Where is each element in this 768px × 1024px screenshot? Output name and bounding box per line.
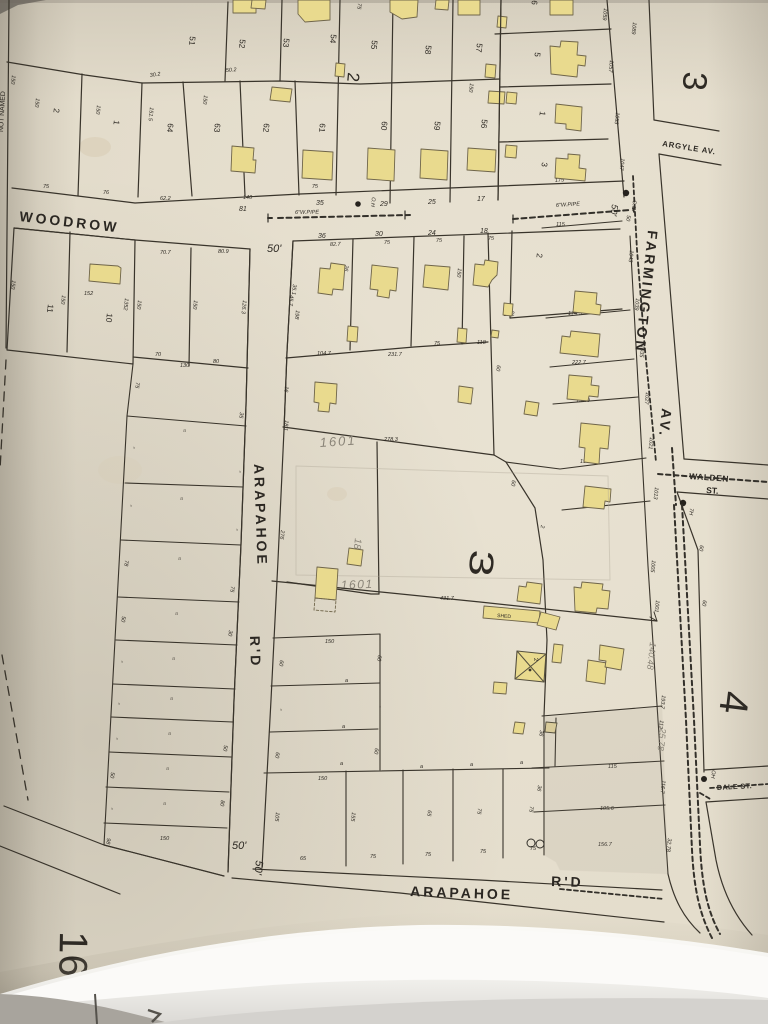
svg-text:1352: 1352 (122, 298, 129, 311)
svg-text:59: 59 (432, 121, 442, 132)
svg-text:155: 155 (349, 812, 356, 823)
svg-text:a: a (470, 762, 473, 768)
svg-text:150: 150 (94, 105, 101, 116)
svg-text:a: a (520, 760, 523, 766)
svg-text:81: 81 (239, 206, 247, 213)
svg-text:ST.: ST. (706, 485, 719, 496)
svg-text:65: 65 (300, 856, 307, 862)
svg-text:30: 30 (375, 231, 383, 238)
svg-text:1601: 1601 (319, 432, 357, 450)
svg-text:10: 10 (104, 313, 114, 324)
svg-text:70: 70 (155, 352, 162, 358)
svg-text:7H: 7H (687, 508, 694, 516)
svg-text:150: 150 (201, 95, 208, 106)
svg-text:O.H: O.H (369, 197, 376, 207)
svg-text:17: 17 (477, 196, 486, 203)
svg-text:150: 150 (325, 639, 335, 645)
svg-text:55: 55 (369, 40, 379, 51)
svg-text:a: a (183, 428, 186, 434)
svg-text:152: 152 (84, 291, 93, 297)
svg-text:2: 2 (539, 524, 545, 529)
svg-text:70.7: 70.7 (160, 250, 172, 256)
svg-text:150: 150 (9, 280, 16, 291)
svg-text:2: 2 (343, 72, 363, 83)
svg-text:150: 150 (467, 83, 474, 94)
svg-text:56: 56 (479, 119, 489, 130)
svg-text:50': 50' (609, 204, 620, 217)
svg-text:a: a (340, 761, 343, 767)
svg-text:1089: 1089 (630, 22, 637, 35)
svg-text:a: a (163, 801, 166, 807)
svg-text:1059: 1059 (601, 8, 608, 21)
svg-text:61: 61 (317, 123, 327, 134)
svg-text:R'D: R'D (247, 636, 264, 669)
svg-text:50': 50' (267, 243, 282, 255)
svg-text:a: a (170, 696, 173, 702)
svg-text:80.9: 80.9 (218, 249, 229, 255)
svg-text:150: 150 (135, 300, 142, 311)
svg-text:50': 50' (232, 840, 247, 852)
svg-text:25: 25 (427, 199, 436, 206)
svg-text:54: 54 (328, 34, 338, 45)
svg-text:a: a (420, 764, 423, 770)
svg-text:AV.: AV. (656, 408, 675, 440)
svg-text:150: 150 (191, 300, 198, 311)
svg-text:75: 75 (434, 341, 441, 347)
svg-text:80: 80 (213, 359, 220, 365)
svg-text:75: 75 (425, 852, 432, 858)
svg-text:51: 51 (187, 36, 197, 47)
svg-text:1001: 1001 (653, 600, 660, 613)
svg-text:118: 118 (477, 340, 487, 346)
svg-text:75: 75 (370, 854, 377, 860)
svg-text:a: a (166, 766, 169, 772)
svg-text:35.1: 35.1 (290, 284, 297, 295)
svg-text:R'D: R'D (551, 873, 584, 890)
svg-text:a: a (175, 611, 178, 617)
svg-text:a: a (168, 731, 171, 737)
svg-text:60: 60 (379, 121, 389, 132)
svg-text:18.1: 18.1 (282, 420, 289, 431)
svg-text:50': 50' (251, 860, 265, 877)
svg-text:76: 76 (103, 190, 110, 196)
svg-text:431.7: 431.7 (440, 596, 455, 602)
svg-text:75: 75 (480, 849, 487, 855)
svg-text:63: 63 (212, 123, 222, 134)
svg-text:18: 18 (480, 228, 488, 235)
svg-text:150: 150 (33, 98, 40, 109)
svg-text:a: a (345, 678, 348, 684)
svg-text:a: a (178, 556, 181, 562)
svg-text:150: 150 (59, 295, 66, 306)
svg-text:140: 140 (243, 195, 253, 201)
svg-text:75: 75 (43, 184, 50, 190)
svg-text:276: 276 (278, 529, 285, 541)
svg-text:150: 150 (455, 268, 462, 279)
svg-text:52: 52 (237, 39, 247, 50)
svg-text:62: 62 (261, 123, 271, 134)
svg-text:64: 64 (165, 123, 175, 134)
svg-text:a: a (342, 724, 345, 730)
svg-text:278.3: 278.3 (383, 437, 399, 443)
svg-text:130: 130 (180, 363, 190, 369)
svg-text:1021: 1021 (647, 437, 654, 450)
svg-text:3: 3 (461, 548, 501, 578)
svg-text:SHED: SHED (497, 613, 512, 620)
svg-text:198: 198 (293, 310, 300, 321)
svg-text:231.7: 231.7 (387, 352, 403, 358)
svg-text:82.7: 82.7 (330, 242, 342, 248)
svg-text:50.2: 50.2 (226, 67, 237, 74)
svg-text:58: 58 (423, 45, 433, 56)
svg-text:150: 150 (318, 776, 328, 782)
svg-text:53: 53 (281, 38, 291, 49)
svg-text:105: 105 (273, 812, 280, 823)
svg-text:24: 24 (427, 230, 436, 237)
svg-text:11: 11 (45, 304, 55, 314)
svg-text:a: a (180, 496, 183, 502)
svg-text:29: 29 (379, 201, 388, 208)
svg-text:104.7: 104.7 (317, 351, 332, 357)
svg-text:36: 36 (318, 233, 326, 240)
svg-text:3: 3 (675, 70, 714, 92)
svg-text:222.7: 222.7 (571, 360, 587, 366)
svg-text:a: a (172, 656, 175, 662)
svg-text:57: 57 (474, 43, 484, 54)
svg-text:150: 150 (9, 75, 16, 86)
svg-text:OH: OH (709, 770, 716, 779)
svg-text:6"W.PIPE: 6"W.PIPE (295, 210, 319, 216)
svg-text:115: 115 (556, 222, 566, 228)
svg-text:35: 35 (316, 200, 324, 207)
svg-text:150: 150 (160, 836, 170, 842)
